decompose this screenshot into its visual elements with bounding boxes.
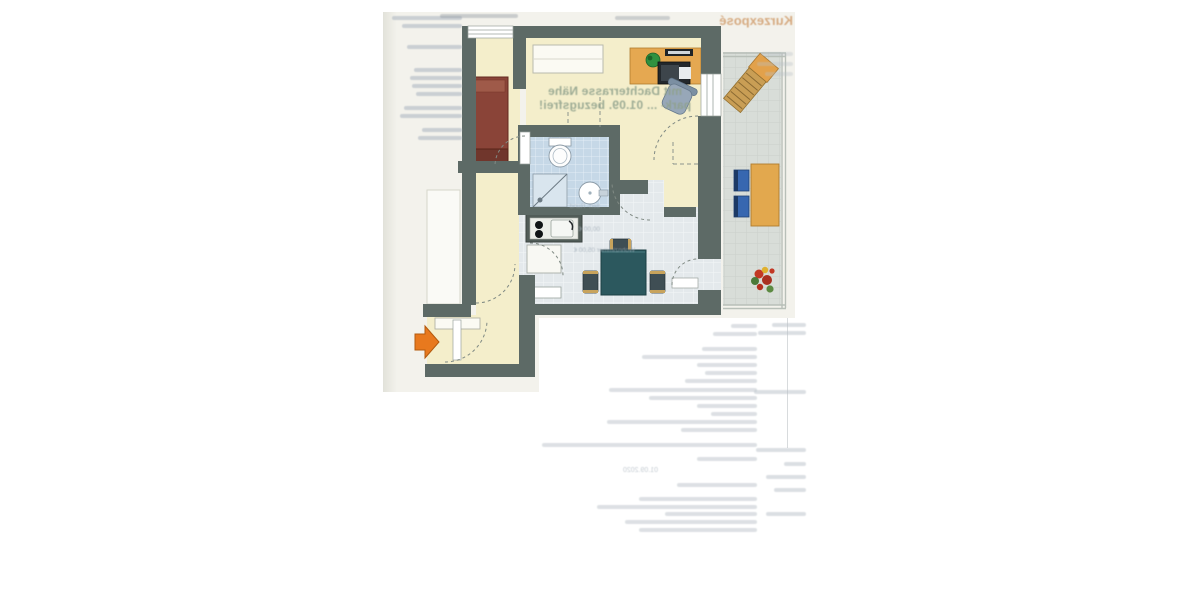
stove-burner [535, 221, 543, 229]
dining-table [601, 250, 646, 295]
terrace-door-leaf [672, 278, 698, 288]
bleed-text-line [639, 528, 757, 532]
bleed-text-line [665, 512, 757, 516]
kitchen-appliance [527, 245, 561, 273]
bleed-text-line [766, 475, 806, 479]
bleed-text-line [639, 497, 757, 501]
bleed-text-line [784, 462, 806, 466]
stairwell-area [427, 190, 460, 304]
scanned-expose-page: Kurzexposé mit Dachterrasse Nähe park- .… [0, 0, 1200, 600]
paper-sheet [679, 67, 691, 79]
sideboard [533, 45, 603, 73]
terrace-table [751, 164, 779, 226]
scan-edge-shadow [383, 12, 397, 392]
bleed-text-line [756, 448, 806, 452]
terrace-glass-door [701, 74, 721, 116]
bleed-text-line [677, 483, 757, 487]
sink [551, 220, 573, 237]
shower [533, 174, 567, 207]
bleed-text-line [597, 505, 757, 509]
bleed-text-line [697, 404, 757, 408]
entrance-door-leaf [453, 320, 461, 360]
bleed-date: 01.09.2020 [610, 467, 658, 474]
bleed-text-line [607, 420, 757, 424]
stove-burner [535, 230, 543, 238]
desk [630, 48, 701, 84]
bleed-text-line [649, 396, 757, 400]
dining-chair [650, 271, 665, 293]
bleed-text-line [697, 457, 757, 461]
bathroom-door-leaf [520, 132, 530, 164]
bleed-text-line [542, 443, 757, 447]
bleed-text-line [711, 412, 757, 416]
toilet [549, 138, 571, 167]
bleed-text-line [625, 520, 757, 524]
bleed-text-line [681, 428, 757, 432]
kitchenette-stove-sink [526, 214, 582, 242]
dining-chair [583, 271, 598, 293]
bedroom-window [468, 26, 513, 38]
dining-chair [610, 239, 631, 251]
bleed-text-line [766, 512, 806, 516]
floor-plan-drawing [383, 12, 798, 392]
bleed-text-line [774, 488, 806, 492]
